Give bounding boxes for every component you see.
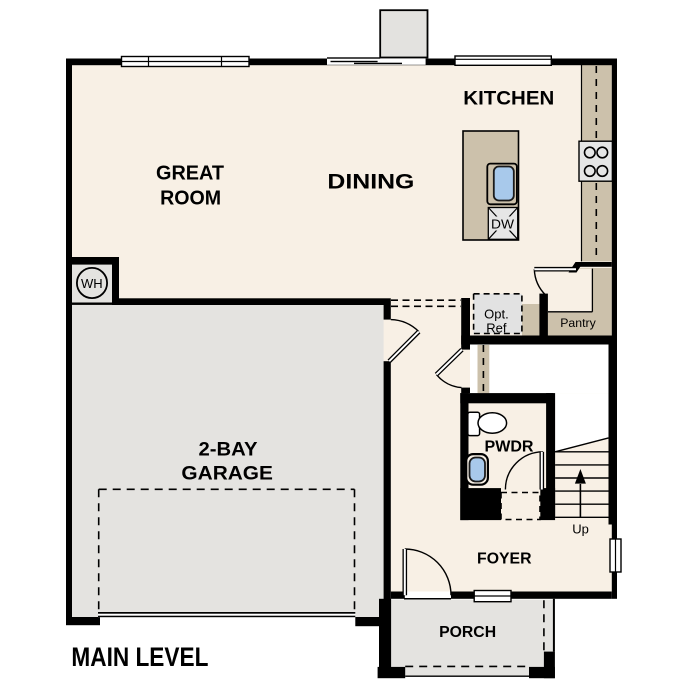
svg-text:GARAGE: GARAGE <box>181 463 273 484</box>
svg-text:DINING: DINING <box>327 171 414 194</box>
svg-text:FOYER: FOYER <box>477 550 532 567</box>
svg-text:2-BAY: 2-BAY <box>199 439 258 460</box>
svg-text:Opt.: Opt. <box>484 307 509 322</box>
svg-text:KITCHEN: KITCHEN <box>463 88 554 109</box>
svg-text:ROOM: ROOM <box>160 188 221 210</box>
svg-text:Ref: Ref <box>486 321 507 336</box>
svg-text:WH: WH <box>81 276 103 291</box>
svg-text:Up: Up <box>572 522 589 537</box>
svg-text:DW: DW <box>491 217 515 232</box>
svg-text:MAIN LEVEL: MAIN LEVEL <box>71 642 208 672</box>
svg-text:GREAT: GREAT <box>156 162 225 184</box>
svg-text:PORCH: PORCH <box>439 624 496 641</box>
svg-text:Pantry: Pantry <box>560 316 596 330</box>
svg-text:PWDR: PWDR <box>485 439 534 456</box>
